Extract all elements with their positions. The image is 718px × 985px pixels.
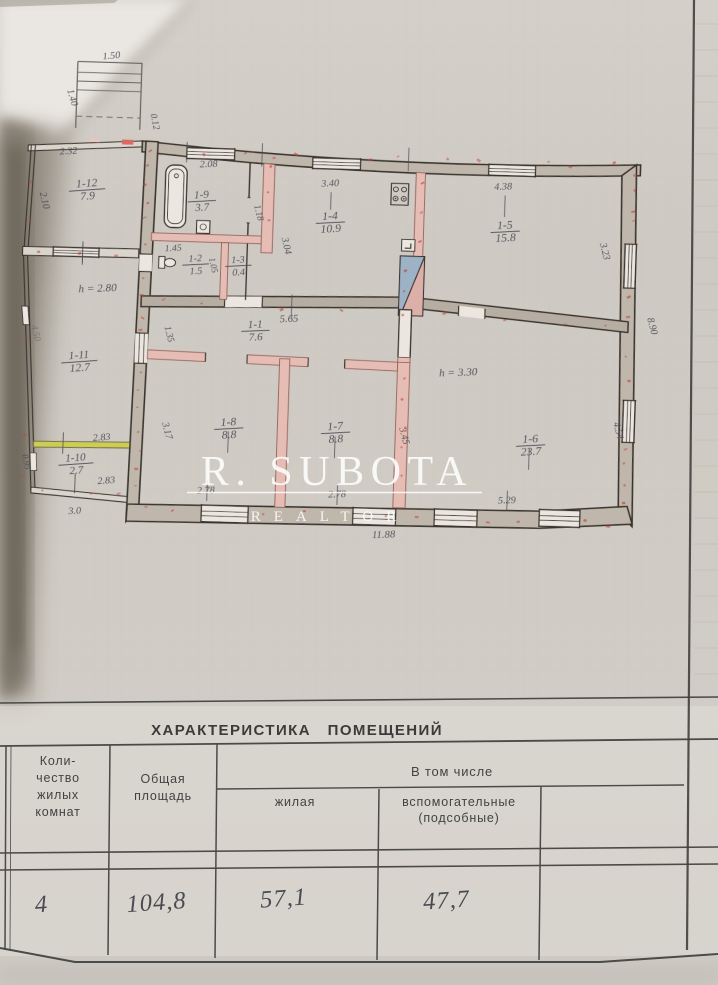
svg-text:1-8: 1-8 [220,416,237,429]
svg-text:1-1: 1-1 [248,319,263,331]
svg-text:1-6: 1-6 [522,433,539,446]
svg-text:1-12: 1-12 [76,177,99,190]
svg-text:23.7: 23.7 [520,446,542,459]
svg-text:2.08: 2.08 [200,159,218,170]
svg-text:Коли-: Коли- [40,754,76,768]
svg-text:h = 2.80: h = 2.80 [78,282,117,295]
svg-text:0.4: 0.4 [232,267,245,278]
svg-text:7.6: 7.6 [248,331,263,343]
svg-text:1.50: 1.50 [102,50,121,62]
svg-text:комнат: комнат [35,805,80,819]
svg-text:10.9: 10.9 [320,223,341,236]
svg-text:57,1: 57,1 [259,883,308,913]
svg-text:2.32: 2.32 [59,146,77,158]
svg-text:В том числе: В том числе [411,764,493,779]
svg-text:1-7: 1-7 [327,420,345,433]
svg-text:ХАРАКТЕРИСТИКА ПОМЕЩЕНИЙ: ХАРАКТЕРИСТИКА ПОМЕЩЕНИЙ [151,721,443,739]
svg-text:3.0: 3.0 [67,505,82,517]
svg-text:3.7: 3.7 [194,202,210,215]
svg-text:Общая: Общая [141,772,186,786]
svg-text:жилая: жилая [275,795,315,809]
svg-text:104,8: 104,8 [126,887,188,918]
svg-text:3.40: 3.40 [320,178,339,189]
svg-text:R. SUBOTA: R. SUBOTA [201,449,473,495]
svg-text:REALTOR: REALTOR [251,509,410,525]
svg-text:1-9: 1-9 [194,189,210,202]
svg-text:2.83: 2.83 [97,475,116,487]
svg-text:8.8: 8.8 [222,429,238,442]
svg-text:1-5: 1-5 [497,219,514,232]
svg-text:1.5: 1.5 [189,266,202,277]
svg-text:1.45: 1.45 [165,244,183,255]
svg-text:47,7: 47,7 [422,885,471,915]
svg-text:5.65: 5.65 [279,314,298,325]
svg-text:2.7: 2.7 [69,464,84,477]
svg-text:8.8: 8.8 [328,433,344,446]
svg-text:(подсобные): (подсобные) [418,811,499,825]
svg-text:жилых: жилых [37,788,79,802]
svg-text:7.9: 7.9 [80,190,96,203]
svg-text:4.38: 4.38 [494,181,512,192]
svg-text:h = 3.30: h = 3.30 [439,366,478,379]
svg-text:11.88: 11.88 [372,529,396,541]
svg-text:площадь: площадь [134,789,192,803]
svg-text:1-2: 1-2 [188,253,202,264]
svg-text:вспомогательные: вспомогательные [402,795,516,809]
svg-text:2.83: 2.83 [92,432,111,444]
svg-text:15.8: 15.8 [495,232,516,245]
svg-text:чество: чество [36,771,80,785]
svg-text:1-4: 1-4 [322,210,339,223]
svg-text:1-3: 1-3 [231,255,245,266]
svg-text:12.7: 12.7 [69,362,92,375]
svg-text:4: 4 [34,891,49,919]
svg-text:1-11: 1-11 [68,349,89,362]
svg-text:1-10: 1-10 [65,451,87,464]
